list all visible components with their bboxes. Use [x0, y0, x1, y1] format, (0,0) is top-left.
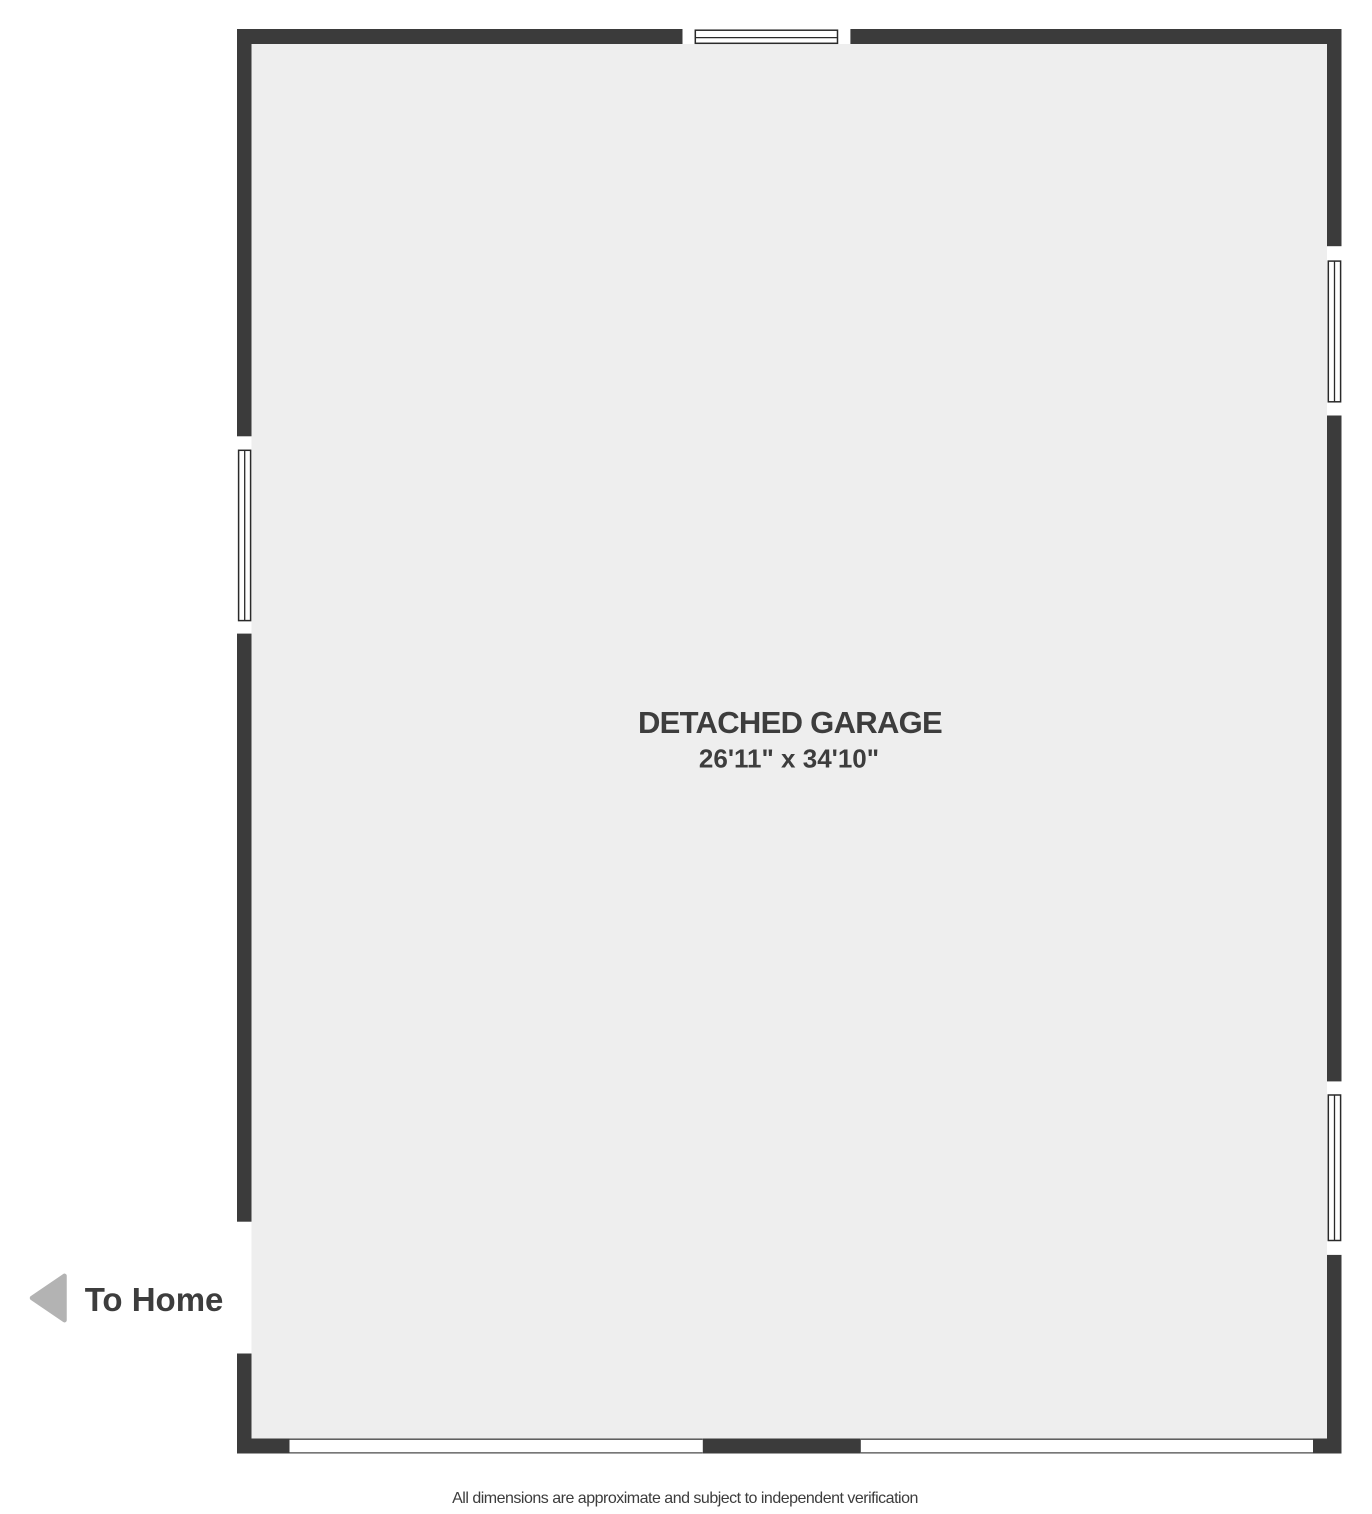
svg-text:26'11" x 34'10": 26'11" x 34'10": [699, 744, 879, 774]
svg-text:All dimensions are approximate: All dimensions are approximate and subje…: [452, 1490, 918, 1507]
svg-text:DETACHED GARAGE: DETACHED GARAGE: [638, 705, 942, 740]
svg-text:To Home: To Home: [85, 1281, 224, 1318]
